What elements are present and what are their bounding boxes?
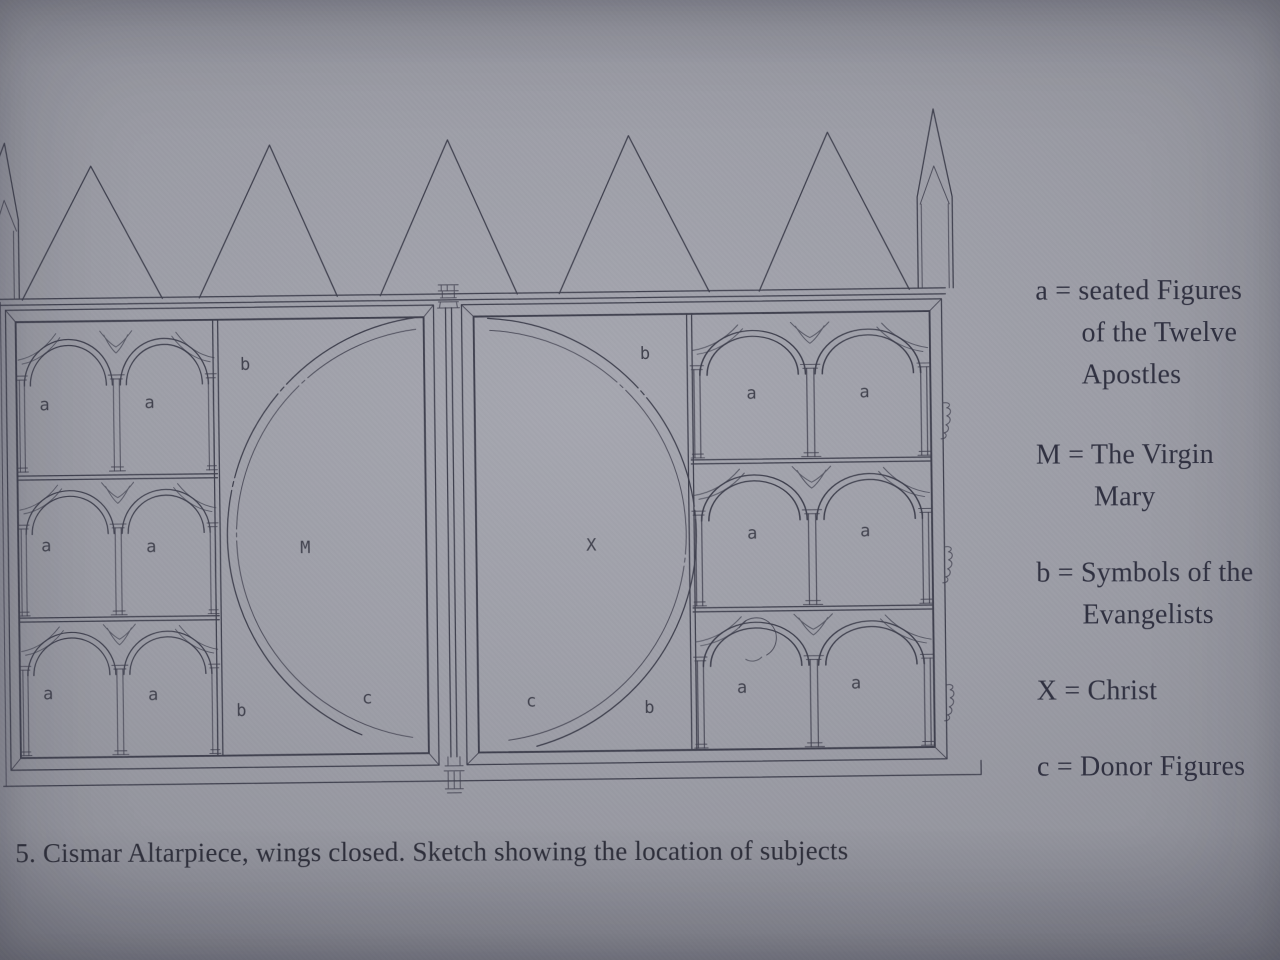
legend-line: of the Twelve [1035,312,1279,355]
subject-label-X: X [586,538,596,555]
right-spire [916,109,953,288]
legend-entry-M: M = The Virgin Mary [1036,434,1280,519]
subject-label-a: a [737,680,747,697]
legend-line: Evangelists [1036,594,1280,637]
book-page-photo: a a a a a a b M b c b X c b a a a a a a … [0,0,1280,960]
subject-label-a: a [148,687,158,704]
subject-label-a: a [39,397,49,414]
legend-line: c = Donor Figures [1037,746,1280,789]
legend-entry-X: X = Christ [1037,670,1280,713]
subject-label-b: b [644,700,654,717]
subject-label-c: c [362,690,372,707]
figure-caption: 5. Cismar Altarpiece, wings closed. Sket… [15,835,1015,869]
panel-left [5,305,439,770]
legend-entry-b: b = Symbols of the Evangelists [1036,552,1280,637]
printed-page: a a a a a a b M b c b X c b a a a a a a … [0,0,1280,960]
subject-label-b: b [240,357,250,374]
legend-line: M = The Virgin [1036,434,1280,477]
legend-line: a = seated Figures [1035,270,1279,313]
subject-label-b: b [640,346,650,363]
subject-label-c: c [526,693,536,710]
gable-pinnacles [20,131,909,300]
subject-label-a: a [144,395,154,412]
legend-line: b = Symbols of the [1036,552,1280,595]
subject-label-b: b [236,703,246,720]
legend-entry-a: a = seated Figures of the Twelve Apostle… [1035,270,1279,397]
legend-line: Mary [1036,476,1280,519]
subject-label-a: a [859,384,869,401]
subject-label-a: a [747,526,757,543]
subject-label-a: a [860,523,870,540]
subject-label-a: a [43,686,53,703]
subject-label-a: a [146,539,156,556]
legend-entry-c: c = Donor Figures [1037,746,1280,789]
subject-label-a: a [746,386,756,403]
legend: a = seated Figures of the Twelve Apostle… [1035,270,1280,823]
legend-line: X = Christ [1037,670,1280,713]
subject-label-a: a [851,675,861,692]
legend-line: Apostles [1036,354,1280,397]
subject-label-a: a [41,538,51,555]
left-spire [0,143,19,299]
subject-label-M: M [300,540,310,557]
center-hinge [437,285,465,793]
